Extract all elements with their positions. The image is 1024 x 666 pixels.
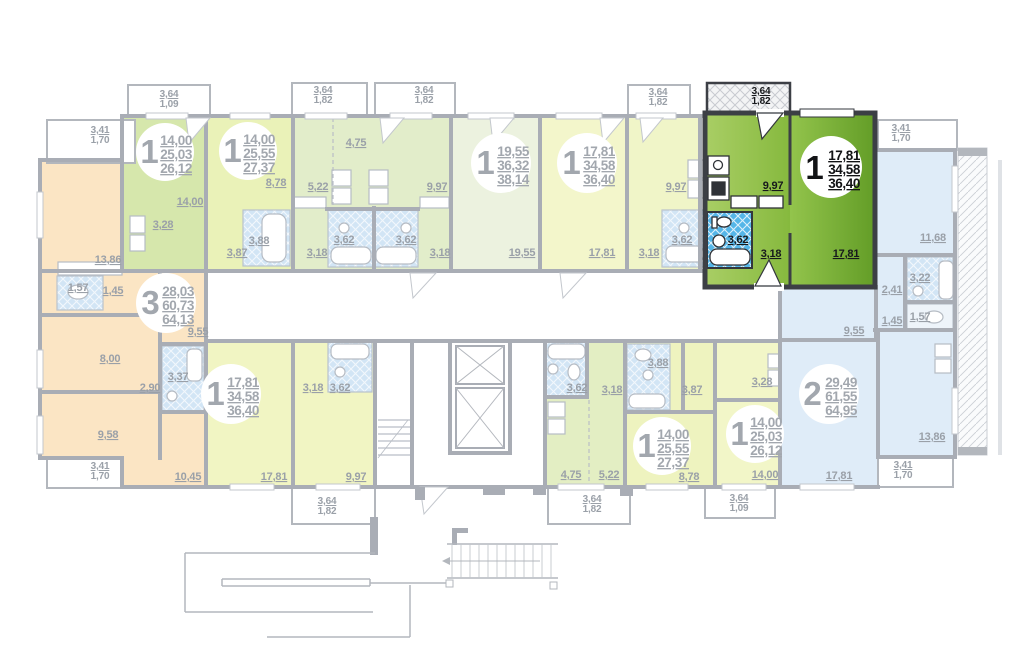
room-label: 8,78 <box>266 177 287 189</box>
svg-text:64,13: 64,13 <box>162 312 195 327</box>
svg-text:27,37: 27,37 <box>657 455 689 470</box>
room-label: 8,00 <box>100 353 121 365</box>
balcony-label-selected: 3,641,82 <box>752 86 771 107</box>
svg-text:1: 1 <box>476 144 494 181</box>
svg-text:1,70: 1,70 <box>91 135 110 146</box>
apartment-badge-f[interactable]: 3 28,03 60,73 64,13 <box>136 273 196 333</box>
svg-text:1,82: 1,82 <box>318 506 337 517</box>
svg-text:36,40: 36,40 <box>828 176 860 191</box>
apartment-badge-b[interactable]: 1 14,00 25,55 27,37 <box>219 122 277 180</box>
room-label: 3,28 <box>153 219 174 231</box>
svg-text:14,00: 14,00 <box>750 415 782 430</box>
room-label: 17,81 <box>261 471 288 483</box>
elevator-shafts <box>450 341 510 453</box>
room-label: 17,81 <box>826 470 853 482</box>
balcony-label: 3,641,82 <box>649 87 668 108</box>
room-label: 14,00 <box>752 469 779 481</box>
apartment-badge-i[interactable]: 1 14,00 25,03 26,12 <box>726 405 784 463</box>
room-label: 13,86 <box>919 431 946 443</box>
room-label: 9,97 <box>427 181 448 193</box>
room-label: 19,55 <box>509 247 536 259</box>
balcony-label: 3,641,82 <box>314 85 333 106</box>
svg-text:36,32: 36,32 <box>497 158 529 173</box>
svg-text:25,03: 25,03 <box>160 147 193 162</box>
svg-text:36,40: 36,40 <box>227 403 259 418</box>
room-label: 4,75 <box>561 469 582 481</box>
svg-text:36,40: 36,40 <box>583 172 615 187</box>
room-label: 9,97 <box>346 471 367 483</box>
svg-text:28,03: 28,03 <box>162 284 195 299</box>
room-label: 9,97 <box>666 181 687 193</box>
balcony-label: 3,641,09 <box>160 89 179 110</box>
svg-text:26,12: 26,12 <box>750 443 782 458</box>
svg-text:60,73: 60,73 <box>162 298 195 313</box>
room-label: 3,18 <box>303 382 324 394</box>
room-label: 3,88 <box>648 357 669 369</box>
svg-text:14,00: 14,00 <box>243 132 275 147</box>
svg-text:1: 1 <box>805 149 823 186</box>
svg-text:34,58: 34,58 <box>227 389 260 404</box>
svg-text:26,12: 26,12 <box>160 161 192 176</box>
svg-text:64,95: 64,95 <box>825 403 858 418</box>
svg-text:25,03: 25,03 <box>750 429 783 444</box>
svg-text:1: 1 <box>140 133 158 170</box>
room-label: 3,62 <box>567 382 588 394</box>
balcony-label: 3,411,70 <box>91 461 110 482</box>
svg-text:1,82: 1,82 <box>415 95 434 106</box>
svg-text:1,09: 1,09 <box>160 99 179 110</box>
room-label-selected: 3,62 <box>728 234 749 246</box>
selected-balcony <box>707 83 790 113</box>
room-label: 3,22 <box>910 272 931 284</box>
svg-text:17,81: 17,81 <box>227 375 260 390</box>
svg-text:25,55: 25,55 <box>657 441 690 456</box>
apartment-badge-c[interactable]: 1 19,55 36,32 38,14 <box>471 133 531 193</box>
selected-window <box>800 109 854 117</box>
svg-text:14,00: 14,00 <box>160 133 192 148</box>
apartment-badge-g[interactable]: 1 17,81 34,58 36,40 <box>201 364 261 424</box>
room-label: 3,18 <box>307 247 328 259</box>
room-label: 3,28 <box>752 376 773 388</box>
balcony-label: 3,641,82 <box>583 494 602 515</box>
room-label: 13,86 <box>95 254 122 266</box>
room-label: 3,18 <box>639 247 660 259</box>
room-label: 3,18 <box>430 247 451 259</box>
svg-text:3: 3 <box>141 284 159 321</box>
balcony-label: 3,641,82 <box>318 496 337 517</box>
svg-text:25,55: 25,55 <box>243 146 276 161</box>
floor-plan: 14,00 3,28 8,78 4,75 5,22 9,97 3,88 3,87… <box>0 0 1024 666</box>
svg-text:17,81: 17,81 <box>828 148 861 163</box>
room-label: 2,41 <box>882 284 903 296</box>
svg-text:1,82: 1,82 <box>314 95 333 106</box>
svg-text:14,00: 14,00 <box>657 427 689 442</box>
room-label: 3,87 <box>682 384 703 396</box>
svg-text:27,37: 27,37 <box>243 160 275 175</box>
apartment-badge-a[interactable]: 1 14,00 25,03 26,12 <box>136 123 194 181</box>
room-label: 3,87 <box>227 247 248 259</box>
room-label: 3,62 <box>396 234 417 246</box>
room-label-selected: 17,81 <box>833 248 860 260</box>
svg-text:19,55: 19,55 <box>497 144 530 159</box>
room-label: 9,55 <box>188 326 209 338</box>
svg-text:2: 2 <box>803 375 821 412</box>
apartment-badge-d[interactable]: 1 17,81 34,58 36,40 <box>557 133 617 193</box>
svg-text:17,81: 17,81 <box>583 144 616 159</box>
balcony-label: 3,641,82 <box>415 85 434 106</box>
room-label: 1,45 <box>882 315 903 327</box>
svg-text:1,70: 1,70 <box>894 470 913 481</box>
svg-text:61,55: 61,55 <box>825 389 858 404</box>
room-label: 1,57 <box>68 282 89 294</box>
apartment-badge-j[interactable]: 2 29,49 61,55 64,95 <box>799 364 859 424</box>
room-label: 1,57 <box>910 311 931 323</box>
svg-text:1,82: 1,82 <box>649 97 668 108</box>
hatched-section-strip <box>958 148 1002 455</box>
apartment-badge-selected[interactable]: 1 17,81 34,58 36,40 <box>800 136 862 198</box>
ramp <box>185 553 450 637</box>
svg-text:34,58: 34,58 <box>583 158 616 173</box>
room-label: 3,62 <box>672 234 693 246</box>
apartment-badge-h[interactable]: 1 14,00 25,55 27,37 <box>633 417 691 475</box>
room-label: 2,90 <box>140 382 161 394</box>
room-label: 3,62 <box>330 382 351 394</box>
balcony-label: 3,641,09 <box>730 493 749 514</box>
svg-text:1,70: 1,70 <box>892 133 911 144</box>
room-label: 8,78 <box>679 471 700 483</box>
svg-text:1,82: 1,82 <box>752 96 771 107</box>
room-label: 17,81 <box>589 247 616 259</box>
room-label: 5,22 <box>599 469 620 481</box>
room-label: 3,18 <box>602 384 623 396</box>
room-label-selected: 9,97 <box>763 180 784 192</box>
svg-text:1: 1 <box>562 144 580 181</box>
room-label: 10,45 <box>175 471 202 483</box>
svg-text:1: 1 <box>206 375 224 412</box>
room-label: 14,00 <box>177 196 204 208</box>
svg-text:1,09: 1,09 <box>730 503 749 514</box>
svg-text:1: 1 <box>223 132 241 169</box>
svg-text:1: 1 <box>637 427 655 464</box>
svg-text:34,58: 34,58 <box>828 162 861 177</box>
room-label: 9,55 <box>844 325 865 337</box>
stairs-external <box>447 544 558 578</box>
svg-text:29,49: 29,49 <box>825 375 857 390</box>
balcony-label: 3,411,70 <box>91 125 110 146</box>
svg-text:1,82: 1,82 <box>583 504 602 515</box>
room-label: 3,37 <box>168 371 189 383</box>
room-label: 11,68 <box>920 232 946 244</box>
svg-text:1: 1 <box>730 415 748 452</box>
room-label-selected: 3,18 <box>761 248 782 260</box>
floor-plan-canvas: 14,00 3,28 8,78 4,75 5,22 9,97 3,88 3,87… <box>0 0 1024 666</box>
stairs-internal <box>378 420 410 458</box>
balcony-label: 3,411,70 <box>892 123 911 144</box>
room-label: 3,62 <box>334 234 355 246</box>
svg-text:1,70: 1,70 <box>91 471 110 482</box>
svg-text:38,14: 38,14 <box>497 172 530 187</box>
balcony-label: 3,411,70 <box>894 460 913 481</box>
room-label: 4,75 <box>346 137 367 149</box>
room-label: 9,58 <box>98 429 119 441</box>
room-label: 1,45 <box>103 285 124 297</box>
room-label: 3,88 <box>249 235 270 247</box>
room-label: 5,22 <box>308 181 329 193</box>
